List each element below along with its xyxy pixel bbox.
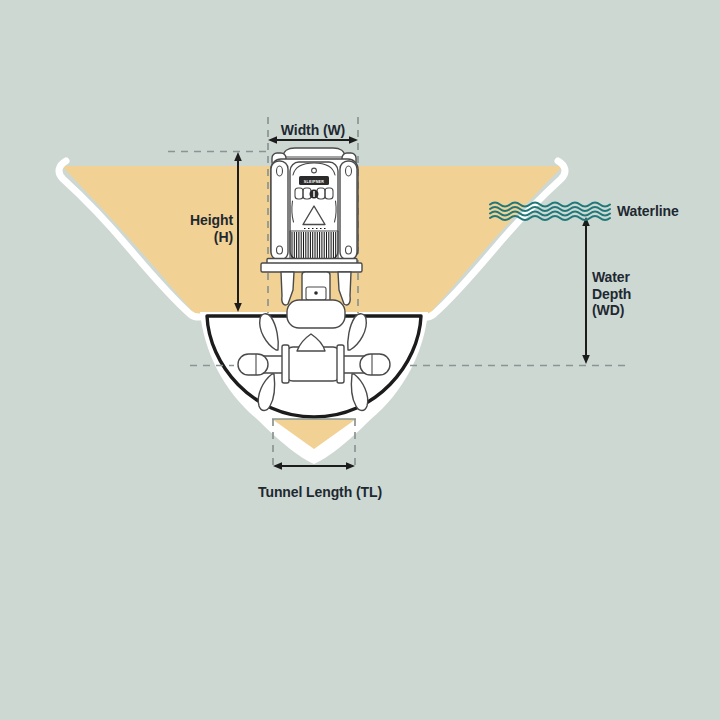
height-label-line2: (H) bbox=[190, 229, 233, 246]
gearbox-plate-left bbox=[282, 345, 289, 383]
water-depth-label: Water Depth (WD) bbox=[592, 269, 631, 319]
center-button-glyph bbox=[313, 191, 314, 197]
gear-bulb bbox=[287, 300, 345, 328]
shaft-cap-left bbox=[238, 354, 268, 375]
thruster-dimension-diagram: SLEIPNER bbox=[0, 0, 720, 720]
shaft-cap-right bbox=[360, 354, 390, 375]
water-depth-line3: (WD) bbox=[592, 302, 631, 319]
tunnel-length-label: Tunnel Length (TL) bbox=[258, 484, 382, 501]
gear-bolt bbox=[314, 291, 318, 295]
water-depth-line2: Depth bbox=[592, 286, 631, 303]
water-depth-line1: Water bbox=[592, 269, 631, 286]
water-depth-arrow bbox=[582, 217, 590, 364]
height-label: Height (H) bbox=[190, 212, 233, 245]
mounting-flange bbox=[261, 263, 362, 272]
diagram-graphics: SLEIPNER bbox=[0, 0, 720, 720]
height-label-line1: Height bbox=[190, 212, 233, 229]
waterline-label: Waterline bbox=[617, 203, 679, 220]
width-label: Width (W) bbox=[281, 122, 345, 139]
gearbox bbox=[286, 347, 340, 381]
brand-label: SLEIPNER bbox=[304, 180, 324, 184]
gearbox-plate-right bbox=[337, 345, 344, 383]
